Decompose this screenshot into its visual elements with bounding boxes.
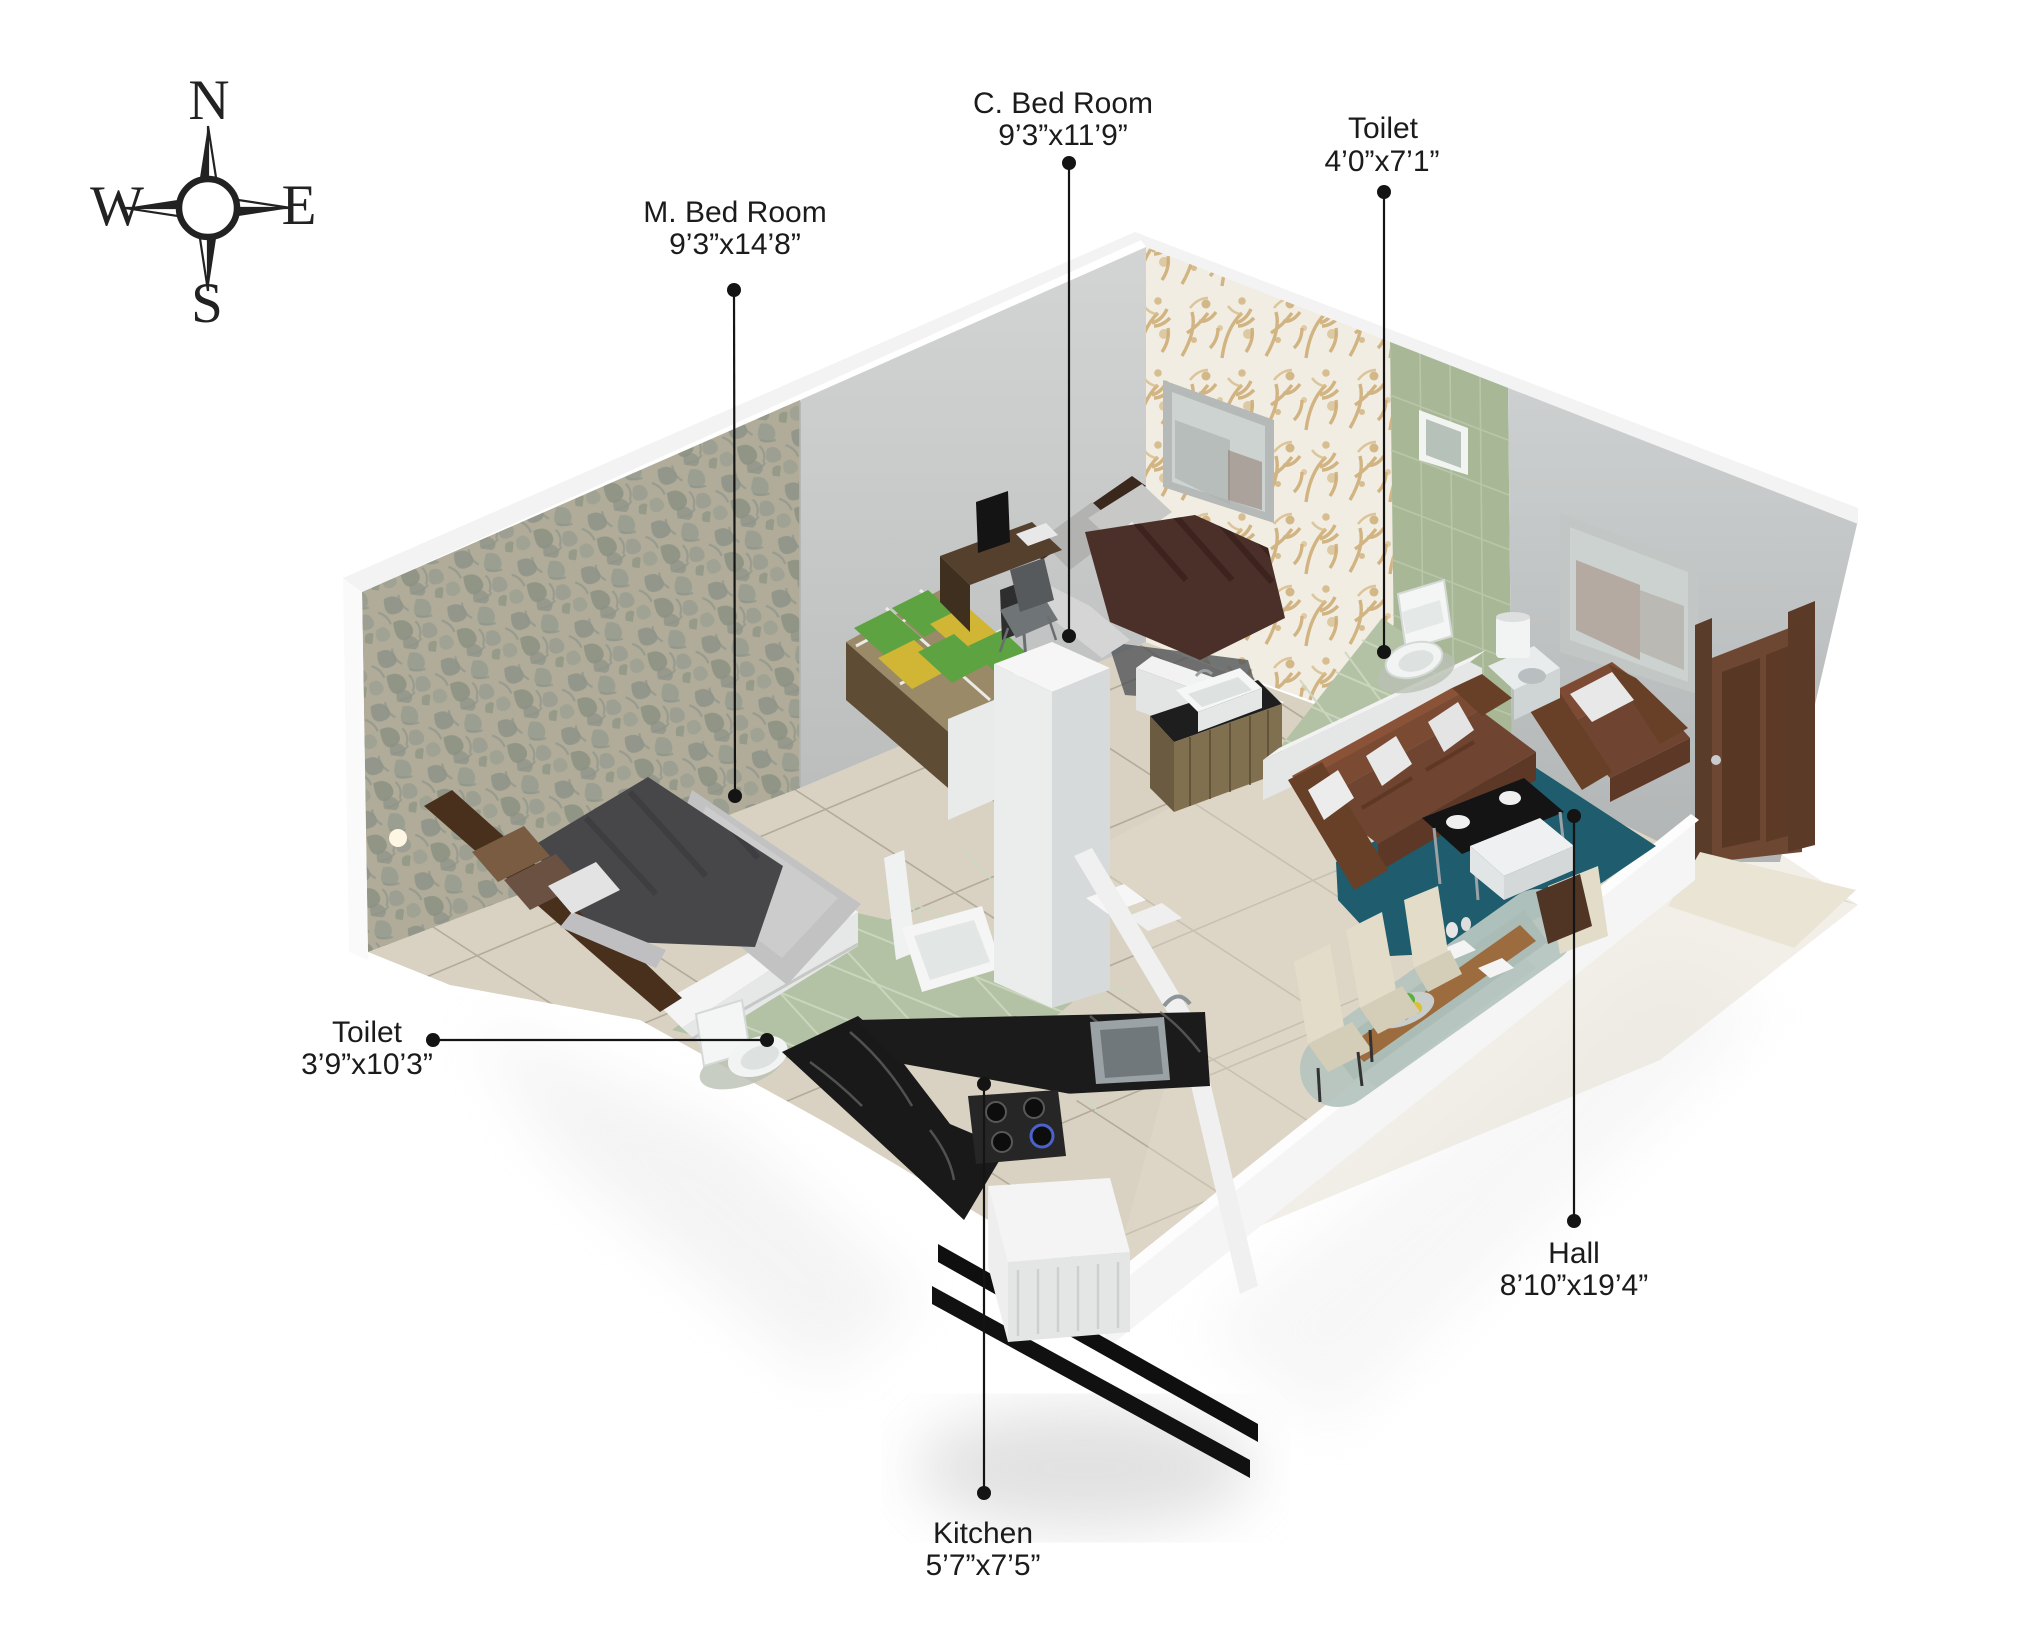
svg-text:E: E xyxy=(282,174,317,237)
svg-text:Toilet: Toilet xyxy=(1348,112,1419,145)
svg-text:N: N xyxy=(188,69,229,132)
svg-text:S: S xyxy=(191,272,223,335)
svg-text:8’10”x19’4”: 8’10”x19’4” xyxy=(1500,1269,1648,1302)
svg-text:3’9”x10’3”: 3’9”x10’3” xyxy=(301,1048,433,1081)
svg-text:5’7”x7’5”: 5’7”x7’5” xyxy=(925,1549,1040,1582)
svg-text:M. Bed Room: M. Bed Room xyxy=(643,196,826,229)
svg-text:Kitchen: Kitchen xyxy=(933,1517,1033,1550)
svg-text:4’0”x7’1”: 4’0”x7’1” xyxy=(1324,145,1439,178)
svg-text:Hall: Hall xyxy=(1548,1237,1600,1270)
svg-text:9’3”x11’9”: 9’3”x11’9” xyxy=(998,119,1128,152)
svg-text:Toilet: Toilet xyxy=(332,1016,403,1049)
svg-text:W: W xyxy=(90,175,144,238)
svg-text:C. Bed Room: C. Bed Room xyxy=(973,87,1153,120)
svg-text:9’3”x14’8”: 9’3”x14’8” xyxy=(669,228,801,261)
